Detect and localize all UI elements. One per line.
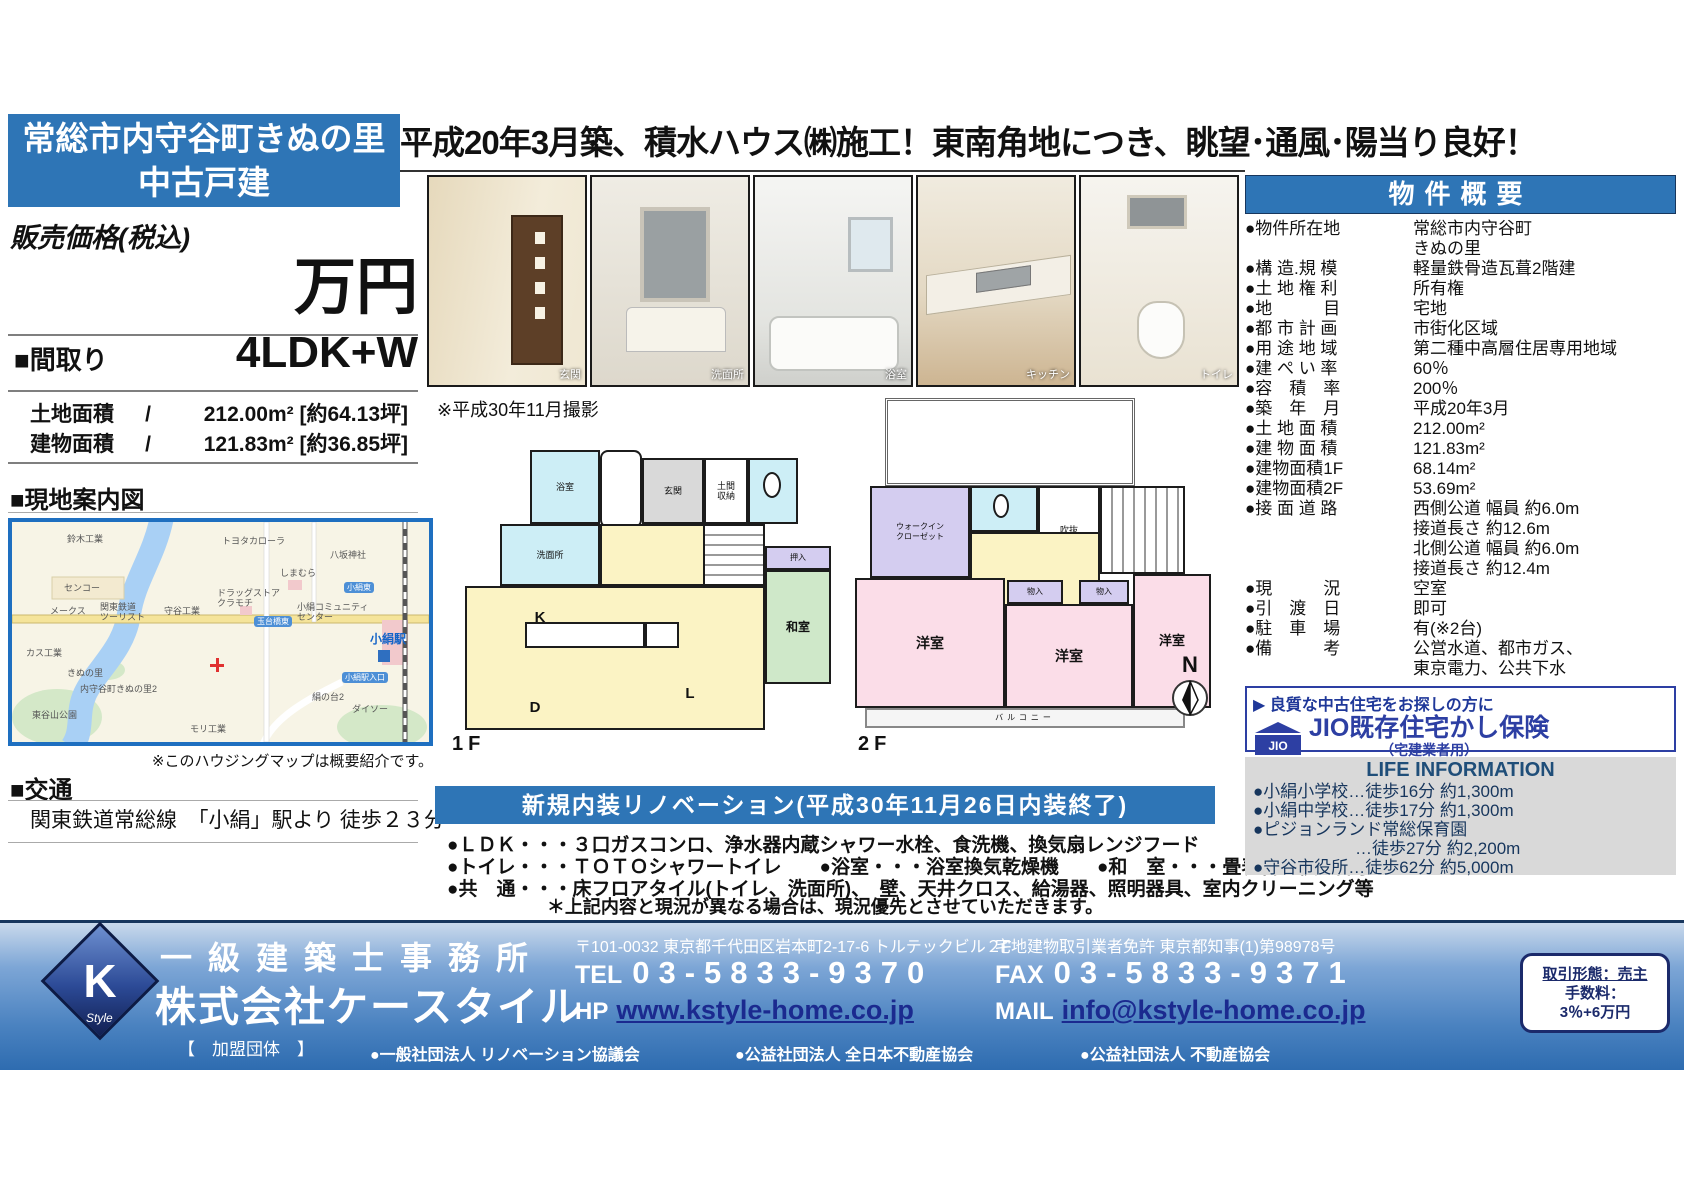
photo-entrance: 玄関: [427, 175, 587, 387]
bathtub-icon: [600, 450, 642, 528]
room-oshiire: 押入: [765, 546, 831, 570]
property-title-line1: 常総市内守谷町きぬの里: [8, 117, 400, 161]
kstyle-logo-k: K: [61, 942, 139, 1020]
room-closet-1: 物入: [1007, 580, 1063, 604]
overview-value: 常総市内守谷町 きぬの里: [1413, 219, 1532, 259]
overview-value: 所有権: [1413, 279, 1464, 299]
map-label: しまむら: [280, 568, 316, 578]
compass-needle-icon: [1170, 678, 1210, 718]
overview-label: ●接 面 道 路: [1245, 499, 1413, 579]
toilet-window: [1127, 195, 1187, 229]
overview-label: ●物件所在地: [1245, 219, 1413, 259]
overview-value: 200％: [1413, 379, 1458, 399]
floor-label-2f: 2F: [858, 733, 891, 756]
overview-value: 53.69m²: [1413, 479, 1475, 499]
association-item: ●公益社団法人 不動産協会: [1080, 1041, 1270, 1065]
overview-row: ●建 ぺ い 率60％: [1245, 359, 1680, 379]
overview-row: ●用 途 地 域第二種中高層住居専用地域: [1245, 339, 1680, 359]
overview-row: ●建 物 面 積121.83m²: [1245, 439, 1680, 459]
overview-label: ●地 目: [1245, 299, 1413, 319]
stove-icon: [645, 622, 679, 648]
door-window: [535, 307, 545, 319]
door-window: [535, 257, 545, 269]
overview-label: ●土 地 権 利: [1245, 279, 1413, 299]
building-area-label: 建物面積: [8, 428, 128, 458]
mail-label: MAIL: [995, 998, 1054, 1025]
overview-value: 平成20年3月: [1413, 399, 1509, 419]
fee-label: 手数料：: [1523, 984, 1667, 1003]
overview-label: ●土 地 面 積: [1245, 419, 1413, 439]
headline: 平成20年3月築、積水ハウス㈱施工！東南角地につき、眺望･通風･陽当り良好！: [400, 116, 1684, 164]
photo-bathroom: 浴室: [753, 175, 913, 387]
map-label: 内守谷町きぬの里2: [80, 684, 157, 694]
jio-insurance-box: ▶ 良質な中古住宅をお探しの方に JIO JIO既存住宅かし保険 （宅建業者用）: [1245, 686, 1676, 752]
compass: N: [1168, 652, 1212, 723]
overview-row: ●都 市 計 画市街化区域: [1245, 319, 1680, 339]
overview-value: 121.83m²: [1413, 439, 1485, 459]
overview-label: ●建物面積2F: [1245, 479, 1413, 499]
life-information-box: LIFE INFORMATION ●小絹小学校…徒歩16分 約1,300m ●小…: [1245, 757, 1676, 875]
fax-number: 03-5833-9371: [1054, 955, 1355, 990]
overview-row: ●駐 車 場有(※2台): [1245, 619, 1680, 639]
overview-row: ●建物面積2F53.69m²: [1245, 479, 1680, 499]
overview-value: 市街化区域: [1413, 319, 1498, 339]
photo-date-note: ※平成30年11月撮影: [437, 396, 599, 422]
member-organizations-label: 【 加盟団体 】: [178, 1035, 314, 1060]
overview-row: ●物件所在地常総市内守谷町 きぬの里: [1245, 219, 1680, 259]
tel-row: TEL03-5833-9370: [575, 955, 933, 991]
overview-row: ●建物面積1F68.14m²: [1245, 459, 1680, 479]
stairs-1f: [703, 524, 765, 586]
overview-row: ●備 考公営水道、都市ガス、 東京電力、公共下水: [1245, 639, 1680, 679]
overview-row: ●現 況空室: [1245, 579, 1680, 599]
overview-value: 空室: [1413, 579, 1447, 599]
life-item: ●ピジョンランド常総保育園 …徒歩27分 約2,200m: [1253, 820, 1668, 858]
property-title-line2: 中古戸建: [8, 161, 400, 205]
divider: [8, 390, 418, 392]
land-area-label: 土地面積: [8, 398, 128, 428]
door-window: [535, 232, 545, 244]
overview-heading: 物件概要: [1245, 175, 1676, 214]
map-label: ダイソー: [352, 704, 388, 714]
slash: /: [128, 433, 168, 457]
map-label: 関東鉄道 ツーリスト: [100, 602, 145, 622]
life-item: ●小絹小学校…徒歩16分 約1,300m: [1253, 782, 1668, 801]
transaction-type: 取引形態：売主: [1523, 965, 1667, 984]
map-label: トヨタカローラ: [222, 536, 285, 546]
balcony: バルコニー: [865, 708, 1185, 728]
overview-row: ●引 渡 日即可: [1245, 599, 1680, 619]
map-label: 小絹コミュニティ センター: [297, 602, 368, 622]
land-area-row: 土地面積/212.00m² [約64.13坪]: [8, 398, 418, 428]
map-label: 東谷山公園: [32, 710, 77, 720]
toilet-bowl: [1137, 301, 1185, 359]
overview-value: 第二種中高層住居専用地域: [1413, 339, 1617, 359]
photo-caption: トイレ: [1200, 366, 1233, 382]
overview-label: ●現 況: [1245, 579, 1413, 599]
site-location-marker: [210, 658, 224, 672]
building-area-row: 建物面積/121.83m² [約36.85坪]: [8, 428, 418, 458]
map-label: きぬの里: [67, 668, 103, 678]
roof-outline: [885, 398, 1135, 486]
overview-label: ●都 市 計 画: [1245, 319, 1413, 339]
map-note: ※このハウジングマップは概要紹介です。: [8, 750, 433, 771]
photo-toilet: トイレ: [1079, 175, 1239, 387]
company-address: 〒101-0032 東京都千代田区岩本町2-17-6 トルテックビル２F: [575, 933, 1012, 957]
map-label-station: 小絹駅: [370, 634, 406, 644]
photo-washroom: 洗面所: [590, 175, 750, 387]
divider: [8, 800, 418, 801]
room-wic: ウォークイン クローゼット: [870, 486, 970, 578]
mail-row: MAILinfo@kstyle-home.co.jp: [995, 995, 1366, 1026]
fax-row: FAX03-5833-9371: [995, 955, 1355, 991]
homepage-link[interactable]: www.kstyle-home.co.jp: [616, 995, 914, 1025]
email-link[interactable]: info@kstyle-home.co.jp: [1062, 995, 1366, 1025]
overview-row: ●築 年 月平成20年3月: [1245, 399, 1680, 419]
room-washroom: 洗面所: [500, 524, 600, 586]
map-label: ドラッグストア クラモチ: [217, 588, 280, 608]
photo-strip: 玄関 洗面所 浴室 キッチン トイレ: [427, 175, 1245, 387]
overview-row: ●土 地 権 利所有権: [1245, 279, 1680, 299]
room-doma-storage: 土間 収納: [704, 458, 748, 524]
floorplan-type-value: 4LDK+W: [8, 328, 418, 378]
kstyle-logo-style: Style: [86, 1011, 113, 1025]
building-area-value: 121.83m² [約36.85坪]: [168, 428, 408, 458]
kitchen-counter-icon: [525, 622, 645, 648]
slash: /: [128, 403, 168, 427]
map-label: センコー: [64, 583, 100, 593]
floorplan-2f: ウォークイン クローゼット 吹抜 洋室 物入 物入 洋室 洋室 バルコニー: [855, 398, 1215, 730]
room-entrance: 玄関: [642, 458, 704, 524]
jio-title: JIO既存住宅かし保険: [1309, 716, 1549, 740]
overview-row: ●容 積 率200％: [1245, 379, 1680, 399]
area-map: 鈴木工業 トヨタカローラ 八坂神社 センコー しまむら メークス 関東鉄道 ツー…: [8, 518, 433, 746]
floor-label-1f: 1F: [452, 733, 485, 756]
room-bedroom-1: 洋室: [855, 578, 1005, 708]
jio-logo-roof: [1255, 722, 1301, 733]
overview-label: ●建物面積1F: [1245, 459, 1413, 479]
overview-value: 即可: [1413, 599, 1447, 619]
room-washitsu: 和室: [765, 570, 831, 684]
life-item: ●守谷市役所…徒歩62分 約5,000m: [1253, 858, 1668, 877]
photo-kitchen: キッチン: [916, 175, 1076, 387]
company-name: 株式会社ケースタイル: [155, 973, 583, 1033]
association-item: ●一般社団法人 リノベーション協議会: [370, 1041, 640, 1065]
property-title: 常総市内守谷町きぬの里 中古戸建: [8, 114, 400, 207]
washroom-mirror: [640, 207, 710, 302]
map-section-heading: ■現地案内図: [10, 480, 145, 515]
map-label: カス工業: [26, 648, 62, 658]
room-bedroom-2: 洋室: [1005, 604, 1133, 708]
overview-value: 60％: [1413, 359, 1449, 379]
price-unit: 万円: [8, 248, 418, 328]
overview-list: ●物件所在地常総市内守谷町 きぬの里 ●構 造.規 模軽量鉄骨造瓦葺2階建 ●土…: [1245, 219, 1680, 679]
overview-value: 西側公道 幅員 約6.0m 接道長さ 約12.6m 北側公道 幅員 約6.0m …: [1413, 499, 1579, 579]
overview-row: ●土 地 面 積212.00m²: [1245, 419, 1680, 439]
jio-logo-icon: JIO: [1253, 722, 1303, 755]
overview-row: ●接 面 道 路西側公道 幅員 約6.0m 接道長さ 約12.6m 北側公道 幅…: [1245, 499, 1680, 579]
map-chip: 小絹駅入口: [342, 672, 388, 683]
room-bath: 浴室: [530, 450, 600, 524]
toilet-icon-1f: [763, 472, 781, 498]
photo-caption: 浴室: [885, 366, 907, 382]
renovation-banner: 新規内装リノベーション(平成30年11月26日内装終了): [435, 786, 1215, 824]
license-number: 宅地建物取引業者免許 東京都知事(1)第98978号: [995, 933, 1336, 957]
overview-row: ●構 造.規 模軽量鉄骨造瓦葺2階建: [1245, 259, 1680, 279]
bathtub: [769, 316, 899, 371]
door-window: [535, 282, 545, 294]
overview-label: ●建 物 面 積: [1245, 439, 1413, 459]
hp-row: HPwww.kstyle-home.co.jp: [575, 995, 914, 1026]
overview-value: 軽量鉄骨造瓦葺2階建: [1413, 259, 1575, 279]
map-chip: 小絹東: [344, 582, 374, 593]
hp-label: HP: [575, 998, 608, 1025]
overview-label: ●用 途 地 域: [1245, 339, 1413, 359]
room-ldk: [465, 586, 765, 730]
overview-row: ●地 目宅地: [1245, 299, 1680, 319]
toilet-icon-2f: [993, 494, 1009, 518]
renovation-note: ＊上記内容と現況が異なる場合は、現況優先とさせていただきます。: [435, 893, 1215, 919]
room-closet-2: 物入: [1079, 580, 1129, 604]
overview-label: ●築 年 月: [1245, 399, 1413, 419]
transaction-type-box: 取引形態：売主 手数料： 3％+6万円: [1520, 953, 1670, 1033]
overview-value: 有(※2台): [1413, 619, 1482, 639]
life-item: ●小絹中学校…徒歩17分 約1,300m: [1253, 801, 1668, 820]
overview-label: ●容 積 率: [1245, 379, 1413, 399]
association-item: ●公益社団法人 全日本不動産協会: [735, 1041, 973, 1065]
map-label: メークス: [50, 606, 86, 616]
divider: [8, 842, 418, 843]
overview-label: ●駐 車 場: [1245, 619, 1413, 639]
photo-caption: キッチン: [1026, 366, 1070, 382]
overview-label: ●備 考: [1245, 639, 1413, 679]
divider: [8, 512, 418, 513]
jio-logo-text: JIO: [1255, 735, 1301, 755]
life-information-heading: LIFE INFORMATION: [1253, 759, 1668, 782]
photo-caption: 玄関: [559, 366, 581, 382]
room-living-label: L: [675, 682, 705, 706]
map-label: 八坂神社: [330, 550, 366, 560]
fax-label: FAX: [995, 961, 1044, 989]
washroom-sink: [626, 307, 726, 352]
overview-value: 宅地: [1413, 299, 1447, 319]
photo-caption: 洗面所: [711, 366, 744, 382]
land-area-value: 212.00m² [約64.13坪]: [168, 398, 408, 428]
overview-value: 68.14m²: [1413, 459, 1475, 479]
map-label: モリ工業: [190, 724, 226, 734]
stairs-2f: [1100, 486, 1185, 574]
access-text: 関東鉄道常総線 「小絹」駅より 徒歩２３分: [30, 804, 445, 834]
map-chip: 玉台橋東: [254, 616, 292, 627]
headline-underline: [400, 170, 1245, 172]
fee-value: 3％+6万円: [1523, 1003, 1667, 1022]
map-label: 守谷工業: [164, 606, 200, 616]
company-footer: K Style 一級建築士事務所 株式会社ケースタイル 【 加盟団体 】 〒10…: [0, 920, 1684, 1070]
compass-north-label: N: [1168, 652, 1212, 678]
overview-value: 212.00m²: [1413, 419, 1485, 439]
tel-number: 03-5833-9370: [632, 955, 933, 990]
overview-label: ●引 渡 日: [1245, 599, 1413, 619]
room-dining-label: D: [520, 696, 550, 720]
map-label: 鈴木工業: [67, 534, 103, 544]
map-label: 絹の台2: [312, 692, 344, 702]
floorplan-1f: 浴室 洗面所 玄関 土間 収納 K D L 押入 和室: [445, 450, 835, 730]
overview-label: ●構 造.規 模: [1245, 259, 1413, 279]
jio-catchphrase: ▶ 良質な中古住宅をお探しの方に: [1253, 691, 1668, 715]
bathroom-window: [848, 217, 893, 272]
overview-value: 公営水道、都市ガス、 東京電力、公共下水: [1413, 639, 1583, 679]
overview-label: ●建 ぺ い 率: [1245, 359, 1413, 379]
divider: [8, 462, 418, 464]
tel-label: TEL: [575, 961, 622, 989]
